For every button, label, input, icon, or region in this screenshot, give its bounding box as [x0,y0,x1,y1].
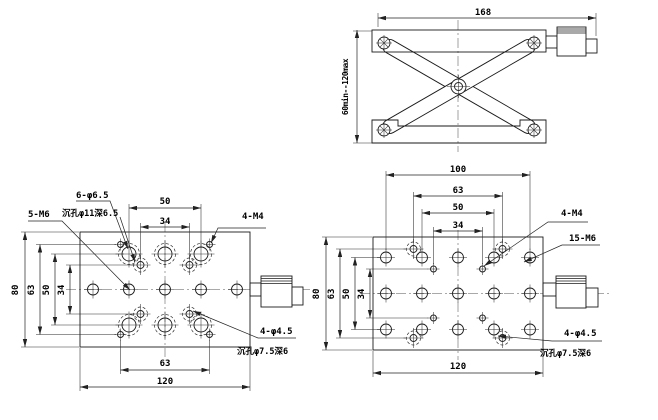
side-base-plate [372,120,546,143]
right-dim-63: 63 [327,289,337,300]
right-dim-80: 80 [312,289,322,300]
side-drive-knob-shaft [546,36,557,48]
left-dim-34: 34 [57,284,67,295]
lab-jack-drawing: 168 60min--120max 50 34 80 63 50 34 63 1… [0,0,658,420]
hole-callout-labels: 6-φ6.5 沉孔φ11深6.5 5-M6 4-M4 4-φ4.5 沉孔φ7.5… [28,191,597,359]
left-dim-80: 80 [11,285,21,296]
left-dim-top-34: 34 [160,217,171,227]
right-dim-top-63: 63 [453,186,464,196]
right-drive-knob-shaft [543,283,556,296]
left-dim-bottom-120: 120 [157,377,173,387]
right-label-m4: 4-M4 [561,209,583,219]
left-label-csk-spec: 沉孔φ7.5深6 [237,346,288,357]
callout-leader [28,221,130,290]
left-drive-knob-shaft [250,283,261,296]
left-dim-50: 50 [42,285,52,296]
right-label-csk-spec: 沉孔φ7.5深6 [540,348,591,359]
extension-lines [21,13,596,391]
left-label-counterbore-spec: 沉孔φ11深6.5 [62,208,118,219]
right-dim-top-34: 34 [453,221,464,231]
dim-travel-range: 60min--120max [340,58,350,115]
left-dim-top-50: 50 [160,197,171,207]
left-drive-knob-cap [292,287,303,305]
right-drive-knob-cap [586,288,598,307]
left-dim-bottom-63: 63 [160,359,171,369]
side-drive-knob-cap [586,39,597,53]
right-dim-top-50: 50 [453,203,464,213]
right-dim-bottom-120: 120 [450,362,466,372]
part-outlines [80,27,598,350]
right-dim-top-100: 100 [450,165,466,175]
right-label-csk-qty: 4-φ4.5 [564,329,597,339]
left-label-csk-qty: 4-φ4.5 [260,327,293,337]
right-label-m6: 15-M6 [569,234,596,244]
left-label-m4: 4-M4 [242,212,264,222]
technical-drawing-canvas: 168 60min--120max 50 34 80 63 50 34 63 1… [0,0,658,420]
right-dim-50: 50 [342,289,352,300]
dim-overall-length: 168 [475,8,491,18]
callout-leader [211,228,266,243]
leader-lines [28,201,602,341]
right-dim-34: 34 [357,288,367,299]
left-dim-63: 63 [27,285,37,296]
left-label-m6: 5-M6 [28,210,50,220]
left-label-counterbore-qty: 6-φ6.5 [76,191,109,201]
